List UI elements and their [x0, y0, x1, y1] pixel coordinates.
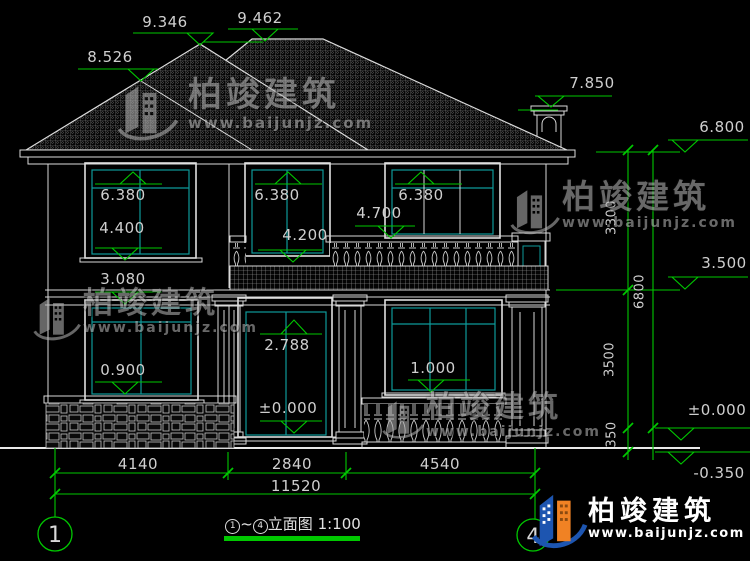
marker-9346: [133, 33, 213, 45]
stone-veneer: [44, 396, 236, 448]
pilaster-door-right: [333, 295, 367, 444]
elevation-drawing-canvas: 1 4 9.346 9.462 8.526 7.850 6.800 3.500 …: [0, 0, 750, 561]
title-underline: [224, 536, 360, 541]
title-tilde: ~: [240, 515, 253, 533]
window-2f-left: [80, 163, 202, 262]
elev-label-chimney: 7.850: [560, 74, 624, 92]
elev-label-hip-left: 8.526: [78, 48, 142, 66]
porch-balustrade: [362, 398, 506, 448]
marker-minus-350: [655, 452, 750, 464]
marker-door-top: [260, 320, 322, 334]
elev-label-w2l-sill: 4.400: [95, 219, 149, 237]
marker-w2m-top: [255, 172, 322, 184]
vdim-6800: 6800: [633, 270, 648, 314]
elev-label-balcony-rail: 4.700: [352, 204, 406, 222]
elev-label-w2m-sill: 4.200: [278, 226, 332, 244]
title-text: 立面图: [268, 515, 313, 533]
eave-cornice: [20, 150, 575, 164]
marker-w1l-top: [95, 292, 162, 304]
marker-w1l-sill: [95, 382, 162, 394]
company-logo-brand: 柏竣建筑: [588, 497, 745, 527]
window-1f-right: [382, 300, 505, 397]
company-logo-icon: [530, 487, 588, 551]
pilaster-corner-right: [506, 295, 548, 443]
company-logo-url: www.baijunjz.com: [588, 526, 745, 541]
marker-w2r-top: [395, 172, 462, 184]
elev-label-w2r-top: 6.380: [394, 186, 448, 204]
elev-label-below-ground: -0.350: [686, 464, 750, 482]
title-scale: 1:100: [318, 515, 361, 533]
marker-3500: [556, 277, 748, 290]
elev-label-ridge-left: 9.346: [133, 13, 197, 31]
elev-label-ridge-main: 9.462: [228, 9, 292, 27]
grid-bubble-1-label: 1: [48, 523, 62, 548]
hdim-4140: 4140: [108, 455, 168, 473]
marker-door-zero: [260, 421, 322, 433]
hdim-4540: 4540: [410, 455, 470, 473]
elev-label-door-top: 2.788: [260, 336, 314, 354]
elev-label-w1l-sill: 0.900: [96, 361, 150, 379]
title-bubble-end: 4: [253, 519, 268, 534]
elev-label-w2l-top: 6.380: [96, 186, 150, 204]
company-logo: 柏竣建筑 www.baijunjz.com: [530, 487, 745, 551]
vdim-3300: 3300: [605, 196, 620, 240]
vdim-3500: 3500: [603, 338, 618, 382]
elev-label-w1l-top: 3.080: [96, 270, 150, 288]
marker-6800: [596, 140, 748, 152]
marker-zero-right: [655, 428, 750, 440]
elev-label-eave: 6.800: [694, 118, 750, 136]
entry-door: [234, 298, 336, 441]
elev-label-w2m-top: 6.380: [250, 186, 304, 204]
drawing-title: 1~4立面图 1:100: [222, 513, 364, 534]
vdim-350: 350: [605, 420, 620, 450]
balcony: [230, 236, 548, 290]
window-1f-left: [80, 300, 204, 404]
elev-label-door-zero: ±0.000: [256, 399, 320, 417]
hdim-11520: 11520: [263, 477, 329, 495]
marker-7850: [518, 96, 612, 110]
elev-label-mid-floor: 3.500: [696, 254, 750, 272]
hdim-2840: 2840: [262, 455, 322, 473]
elev-label-w1r-sill: 1.000: [406, 359, 460, 377]
title-bubble-start: 1: [225, 519, 240, 534]
elev-label-zero-right: ±0.000: [684, 401, 750, 419]
marker-w2l-top: [95, 172, 162, 184]
